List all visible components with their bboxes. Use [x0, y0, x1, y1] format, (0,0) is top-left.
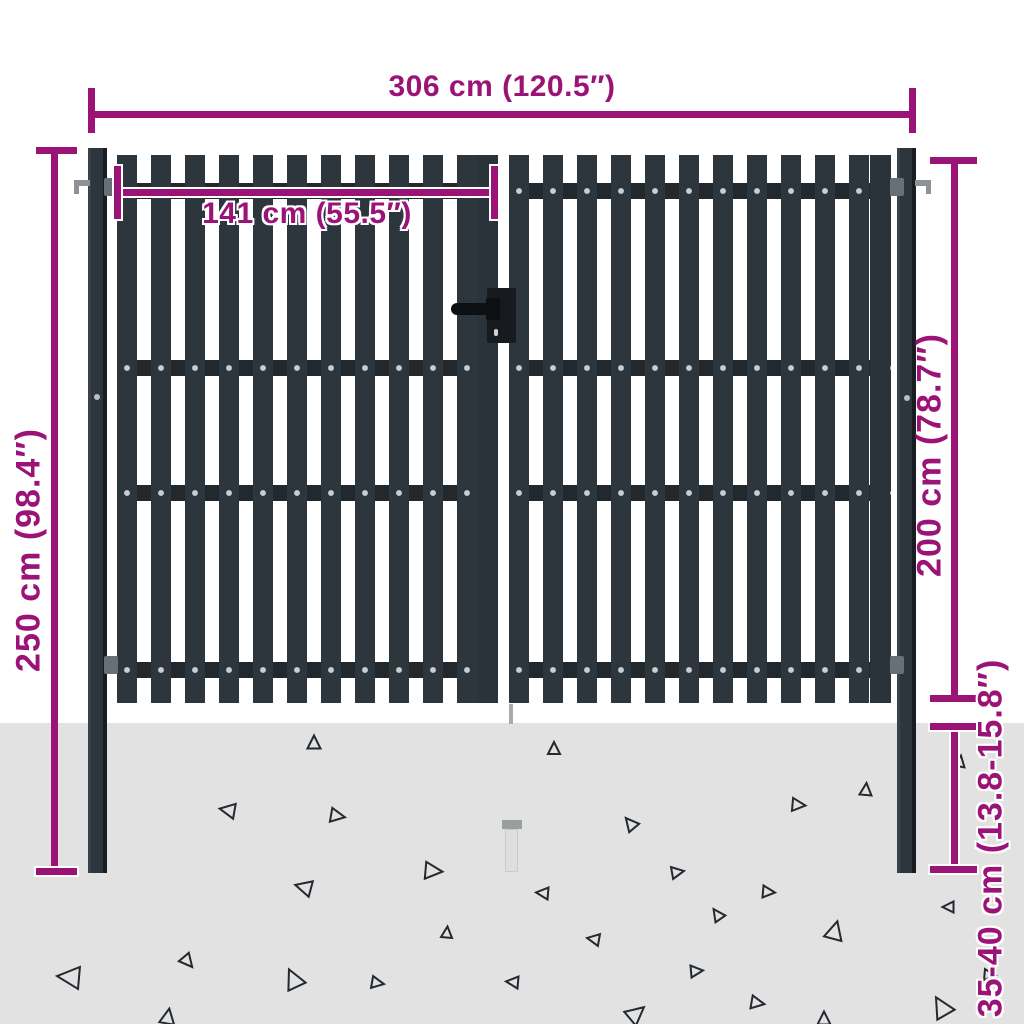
- post-bolt-left: [94, 394, 100, 400]
- dim-label-post-height: 250 cm (98.4″): [10, 428, 49, 672]
- hinge-hook-icon: [926, 180, 931, 194]
- hinge-hook-icon: [74, 180, 79, 194]
- dim-tick: [88, 88, 95, 133]
- dim-line-leaf-width: [117, 189, 498, 196]
- dim-line-total-width: [90, 111, 914, 118]
- dim-tick: [491, 166, 498, 219]
- gate-dimension-diagram: 306 cm (120.5″) 141 cm (55.5″) 250 cm (9…: [0, 0, 1024, 1024]
- rivet-row: [509, 360, 891, 376]
- dim-label-gate-height: 200 cm (78.7″): [911, 333, 950, 577]
- hinge-icon: [890, 178, 904, 196]
- dim-line-gate-height: [951, 160, 958, 700]
- gate-handle-hub: [486, 298, 500, 320]
- rivet-row: [509, 662, 891, 678]
- dim-tick: [36, 147, 77, 154]
- gate-slats: [509, 155, 891, 703]
- rivet-row: [509, 183, 891, 199]
- rivet-row: [117, 485, 498, 501]
- dim-label-total-width: 306 cm (120.5″): [388, 70, 615, 104]
- gate-leaf-right: [509, 155, 891, 703]
- dim-line-buried-depth: [951, 726, 958, 871]
- dim-label-leaf-width: 141 cm (55.5″): [202, 197, 412, 231]
- gate-slats: [117, 155, 498, 703]
- rivet-row: [117, 360, 498, 376]
- dim-tick: [114, 166, 121, 219]
- buried-anchor-cap: [502, 820, 522, 829]
- rivet-row: [509, 485, 891, 501]
- drop-rod-pin: [509, 704, 513, 724]
- ground: [0, 723, 1024, 1024]
- dim-tick: [930, 695, 977, 702]
- dim-tick: [930, 866, 977, 873]
- buried-anchor-rod: [505, 829, 518, 872]
- dim-label-buried-depth: 35-40 cm (13.8-15.8″): [972, 659, 1011, 1018]
- hinge-icon: [104, 656, 118, 674]
- gate-post-left: [88, 148, 107, 873]
- dim-tick: [36, 868, 77, 875]
- keyhole-icon: [494, 329, 498, 336]
- gate-leaf-left: [117, 155, 498, 703]
- dim-line-post-height: [51, 150, 58, 872]
- post-bolt-right: [904, 395, 910, 401]
- gate-stile: [477, 155, 498, 703]
- dim-tick: [930, 723, 977, 730]
- dim-tick: [909, 88, 916, 133]
- dim-tick: [930, 157, 977, 164]
- rivet-row: [117, 662, 498, 678]
- hinge-icon: [890, 656, 904, 674]
- gate-stile: [870, 155, 891, 703]
